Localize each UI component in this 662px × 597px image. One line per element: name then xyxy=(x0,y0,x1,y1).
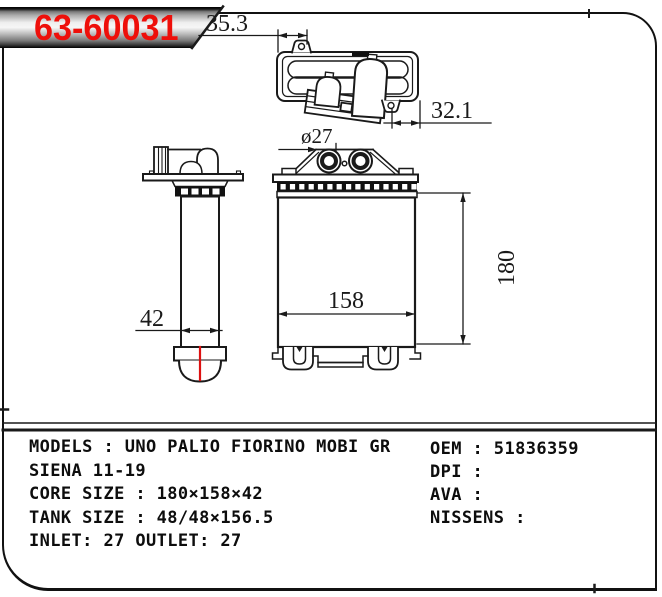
spec-nissens: NISSENS : xyxy=(430,508,526,528)
dim-label-35-3: 35.3 xyxy=(206,11,248,37)
large-pipe-stub xyxy=(352,53,388,118)
dim-label-42: 42 xyxy=(140,306,164,332)
center-pin xyxy=(342,161,347,166)
left-foot xyxy=(283,347,313,370)
tank-notch xyxy=(352,52,369,56)
top-view-drawing xyxy=(277,41,418,124)
spec-tank-size: TANK SIZE : 48/48×156.5 xyxy=(29,508,274,528)
side-core-body xyxy=(181,197,219,348)
front-core-body xyxy=(278,198,415,348)
right-foot xyxy=(368,347,398,370)
spec-ava: AVA : xyxy=(430,485,483,505)
spec-models-line1: MODELS : UNO PALIO FIORINO MOBI GR xyxy=(29,437,391,457)
side-inner-dome xyxy=(180,162,202,175)
foot-tray xyxy=(318,363,363,368)
spec-dpi: DPI : xyxy=(430,462,483,482)
spec-inlet-outlet: INLET: 27 OUTLET: 27 xyxy=(29,531,242,551)
dim-label-pipe-diameter: ø27 xyxy=(301,124,333,148)
top-mount-tab xyxy=(292,41,311,53)
catalog-page: 63-60031 xyxy=(0,0,662,597)
dim-label-180: 180 xyxy=(494,250,520,286)
dim-label-32-1: 32.1 xyxy=(431,98,473,124)
dim-label-158: 158 xyxy=(328,288,364,314)
side-view-drawing xyxy=(143,147,243,382)
spec-models-line2: SIENA 11-19 xyxy=(29,461,146,481)
spec-core-size: CORE SIZE : 180×158×42 xyxy=(29,484,263,504)
spec-oem: OEM : 51836359 xyxy=(430,439,579,459)
side-flange xyxy=(143,174,243,181)
dim-180 xyxy=(417,193,470,344)
front-flange xyxy=(273,175,418,183)
front-view-drawing xyxy=(273,150,421,370)
